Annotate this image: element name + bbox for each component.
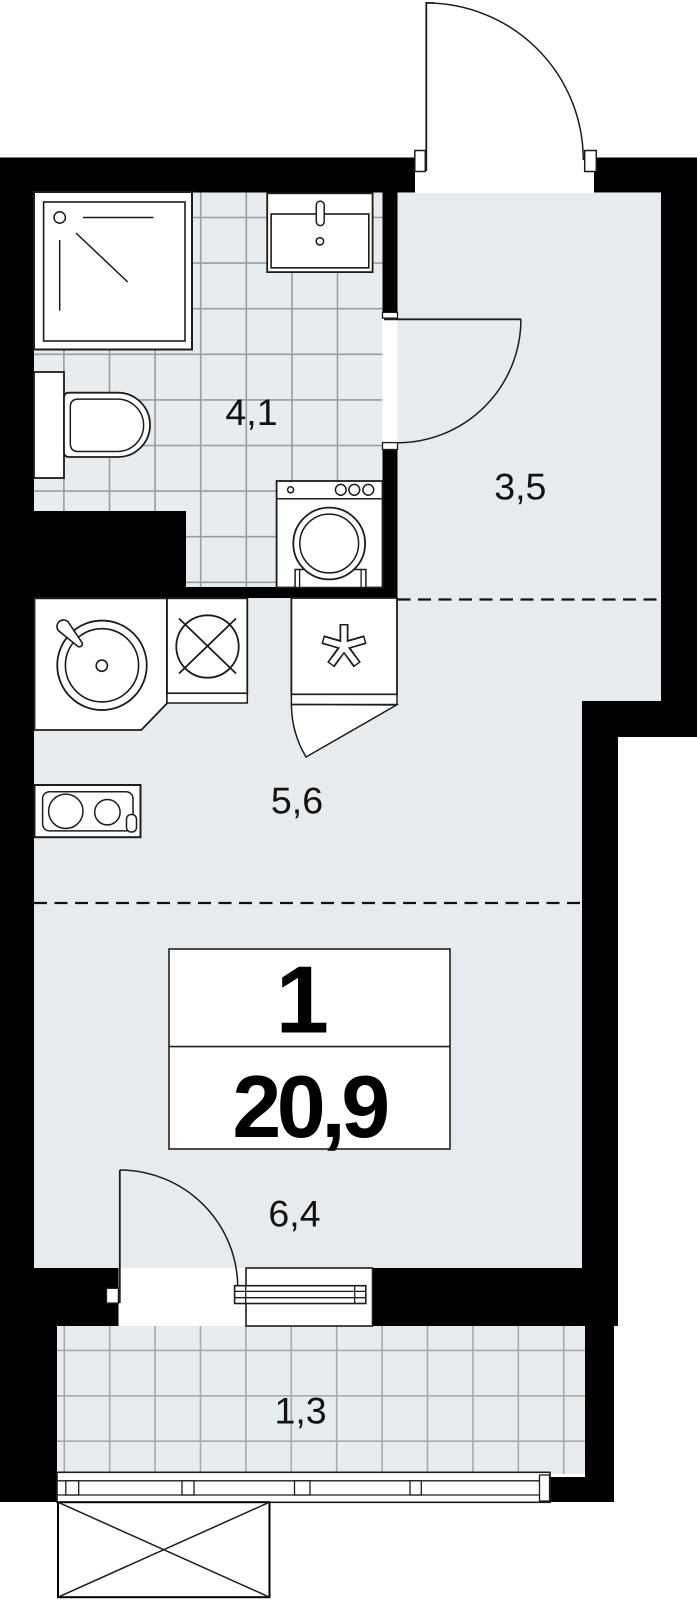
svg-text:1: 1 [276, 946, 329, 1053]
svg-text:1,3: 1,3 [275, 1390, 327, 1432]
svg-text:20,9: 20,9 [232, 1057, 387, 1156]
svg-text:6,4: 6,4 [268, 1193, 320, 1235]
svg-text:3,5: 3,5 [494, 466, 546, 508]
svg-text:4,1: 4,1 [225, 391, 277, 433]
svg-text:5,6: 5,6 [271, 779, 323, 821]
